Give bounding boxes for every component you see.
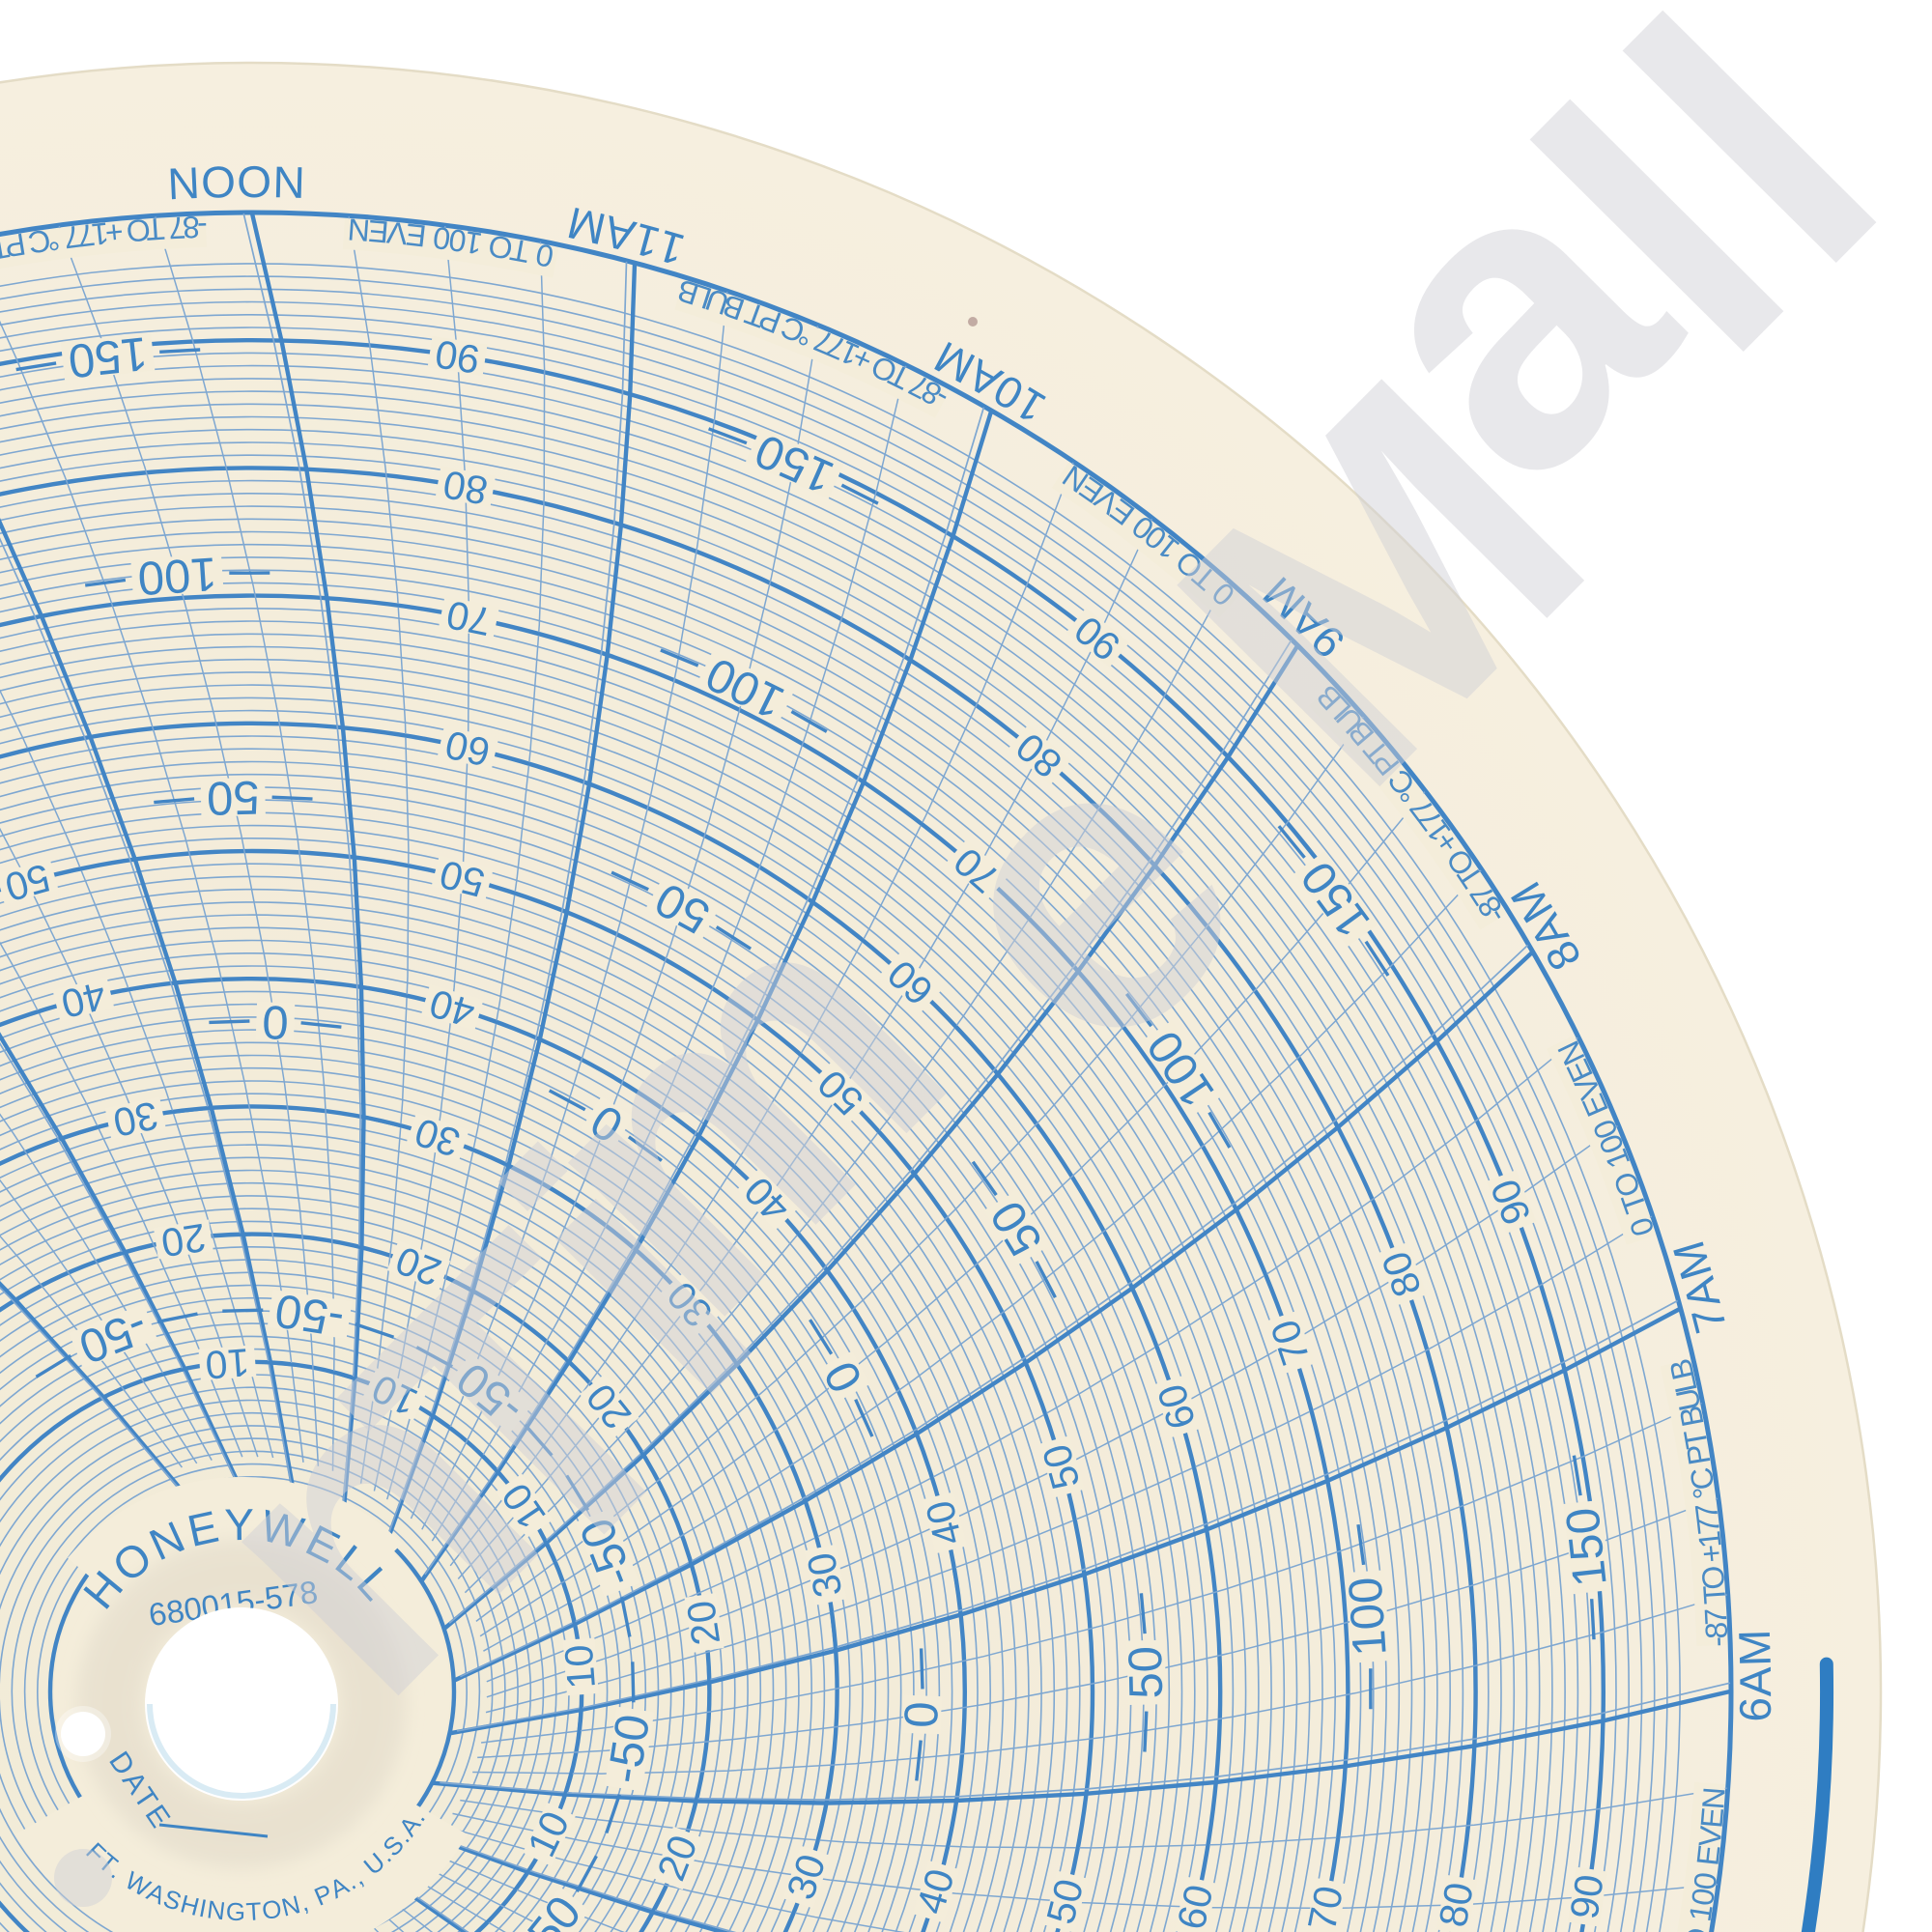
svg-text:N: N (206, 1894, 227, 1925)
svg-text:150: 150 (1556, 1505, 1617, 1589)
svg-text:0: 0 (261, 995, 289, 1048)
svg-text:N: N (347, 212, 372, 248)
svg-text:30: 30 (109, 1093, 161, 1145)
svg-text:O: O (1695, 1564, 1732, 1591)
svg-text:7: 7 (168, 211, 187, 246)
svg-text:N: N (272, 156, 305, 208)
svg-text:6: 6 (1730, 1697, 1780, 1722)
svg-text:90: 90 (1561, 1871, 1611, 1921)
svg-text:50: 50 (207, 771, 261, 824)
svg-text:O: O (237, 156, 271, 207)
svg-text:0: 0 (895, 1700, 949, 1728)
svg-text:N: N (166, 157, 201, 209)
svg-text:30: 30 (798, 1548, 850, 1601)
svg-text:N: N (1695, 1786, 1732, 1811)
svg-text:80: 80 (440, 462, 491, 513)
svg-text:150: 150 (66, 327, 150, 387)
svg-text:M: M (1729, 1629, 1780, 1667)
svg-text:70: 70 (442, 592, 495, 644)
svg-text:A: A (1730, 1666, 1780, 1696)
svg-text:100: 100 (136, 547, 218, 604)
svg-text:O: O (201, 156, 237, 208)
svg-text:90: 90 (432, 331, 482, 382)
svg-text:G: G (225, 1897, 245, 1927)
svg-text:80: 80 (1431, 1879, 1482, 1930)
svg-text:100: 100 (1339, 1576, 1396, 1658)
svg-text:70: 70 (1299, 1882, 1351, 1932)
svg-text:-50: -50 (598, 1711, 660, 1786)
svg-text:50: 50 (1120, 1646, 1173, 1700)
svg-text:7: 7 (1698, 1607, 1734, 1627)
svg-text:O: O (125, 213, 152, 249)
svg-text:20: 20 (158, 1215, 209, 1265)
svg-text:20: 20 (678, 1598, 728, 1648)
